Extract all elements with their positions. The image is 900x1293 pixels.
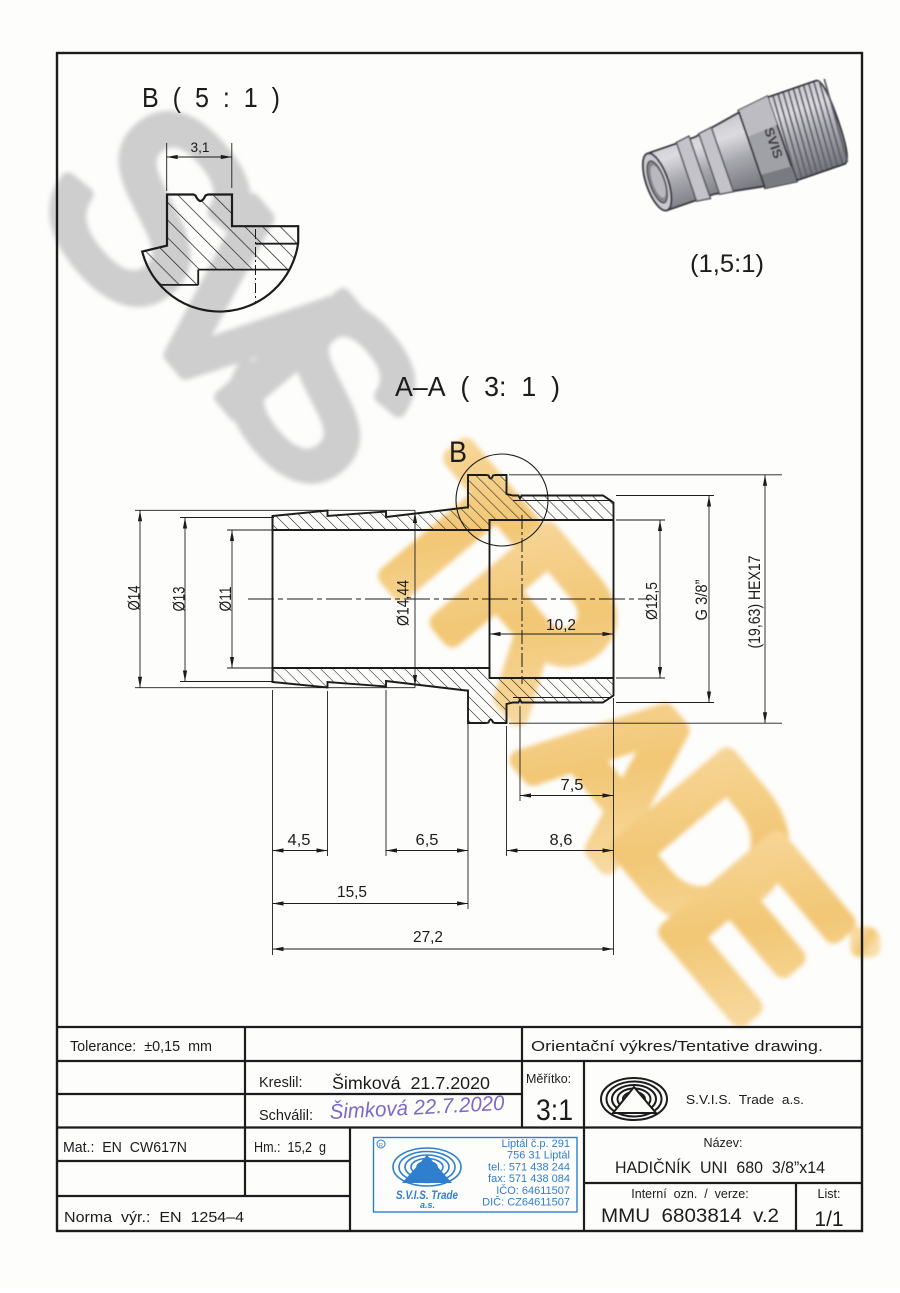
svg-text:15,5: 15,5: [337, 884, 367, 901]
svg-text:10,2: 10,2: [546, 617, 576, 634]
svg-text:Měřítko:: Měřítko:: [526, 1072, 571, 1086]
svg-text:3:1: 3:1: [536, 1094, 573, 1127]
svg-text:Schválil:: Schválil:: [259, 1108, 313, 1124]
svg-text:Ø14,44: Ø14,44: [395, 580, 413, 626]
svg-text:Ø13: Ø13: [171, 587, 189, 612]
svg-text:Interní ozn. / verze:: Interní ozn. / verze:: [631, 1187, 748, 1201]
svg-text:IČO: 64611507: IČO: 64611507: [496, 1184, 570, 1197]
svg-text:27,2: 27,2: [413, 929, 443, 946]
svg-text:4,5: 4,5: [288, 832, 311, 849]
svg-text:tel.: 571 438 244: tel.: 571 438 244: [488, 1161, 570, 1173]
svg-text:1/1: 1/1: [814, 1208, 843, 1231]
svg-text:(19,63) HEX17: (19,63) HEX17: [745, 556, 764, 649]
svg-text:a.s.: a.s.: [420, 1200, 435, 1210]
svg-text:8,6: 8,6: [550, 832, 573, 849]
svg-text:A–A ( 3: 1 ): A–A ( 3: 1 ): [395, 371, 560, 402]
svg-text:HADIČNÍK UNI 680 3/8”x14: HADIČNÍK UNI 680 3/8”x14: [615, 1158, 825, 1177]
svg-text:Šimková 21.7.2020: Šimková 21.7.2020: [332, 1072, 490, 1093]
svg-text:(1,5:1): (1,5:1): [690, 250, 764, 278]
svg-text:DIČ: CZ64611507: DIČ: CZ64611507: [482, 1196, 570, 1209]
svg-text:Kreslil:: Kreslil:: [259, 1075, 303, 1091]
svg-text:B ( 5 : 1 ): B ( 5 : 1 ): [142, 82, 280, 113]
svg-text:7,5: 7,5: [561, 777, 584, 794]
svg-text:3,1: 3,1: [191, 139, 210, 155]
svg-text:fax: 571 438 084: fax: 571 438 084: [488, 1173, 570, 1185]
svg-text:G 3/8”: G 3/8”: [692, 579, 711, 620]
svg-text:List:: List:: [818, 1187, 841, 1201]
svg-text:Název:: Název:: [704, 1136, 743, 1150]
svg-text:Liptál č.p. 291: Liptál č.p. 291: [502, 1138, 571, 1150]
svg-text:R: R: [379, 1143, 383, 1149]
svg-text:6,5: 6,5: [416, 832, 439, 849]
svg-text:Orientační výkres/Tentative dr: Orientační výkres/Tentative drawing.: [531, 1038, 823, 1055]
svg-text:Ø14: Ø14: [126, 586, 144, 611]
svg-text:Tolerance: ±0,15 mm: Tolerance: ±0,15 mm: [70, 1038, 212, 1055]
svg-text:Mat.: EN CW617N: Mat.: EN CW617N: [63, 1139, 187, 1156]
svg-text:Ø11: Ø11: [217, 587, 235, 612]
svg-text:MMU 6803814 v.2: MMU 6803814 v.2: [601, 1206, 779, 1227]
svg-text:S.V.I.S. Trade a.s.: S.V.I.S. Trade a.s.: [686, 1092, 804, 1107]
svg-text:Norma výr.: EN 1254–4: Norma výr.: EN 1254–4: [64, 1209, 244, 1226]
svg-text:756 31 Liptál: 756 31 Liptál: [507, 1150, 570, 1162]
svg-text:Hm.: 15,2 g: Hm.: 15,2 g: [254, 1139, 326, 1156]
svg-text:Ø12,5: Ø12,5: [644, 582, 661, 620]
svg-text:B: B: [449, 436, 467, 469]
